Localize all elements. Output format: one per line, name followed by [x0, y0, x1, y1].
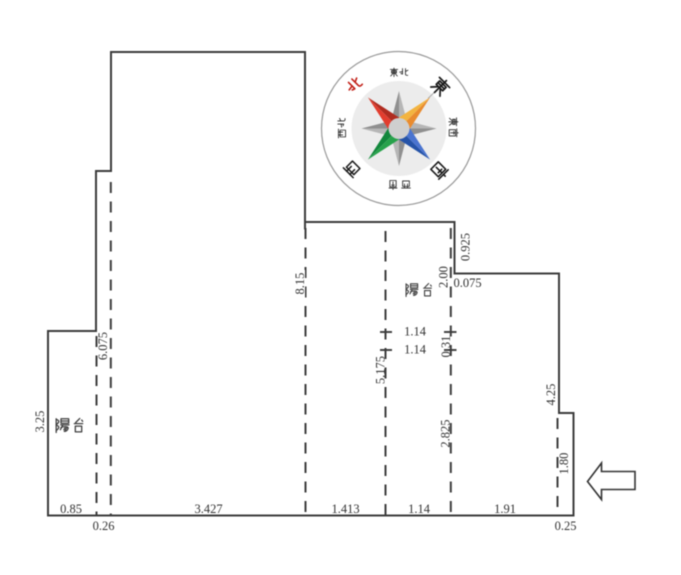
- svg-text:1.14: 1.14: [404, 343, 427, 357]
- svg-text:8.15: 8.15: [293, 273, 307, 295]
- svg-text:0.25: 0.25: [555, 519, 577, 533]
- svg-text:0.075: 0.075: [453, 276, 481, 290]
- svg-text:0.31: 0.31: [439, 336, 453, 358]
- svg-text:0.925: 0.925: [459, 233, 473, 261]
- svg-text:3.427: 3.427: [194, 502, 222, 516]
- svg-text:1.14: 1.14: [408, 502, 431, 516]
- svg-text:1.80: 1.80: [557, 453, 571, 475]
- svg-text:1.14: 1.14: [404, 325, 427, 339]
- svg-text:3.25: 3.25: [33, 411, 47, 433]
- svg-text:2.00: 2.00: [437, 266, 451, 288]
- svg-text:1.413: 1.413: [331, 502, 359, 516]
- svg-text:4.25: 4.25: [544, 384, 558, 406]
- svg-text:2.825: 2.825: [439, 419, 453, 447]
- svg-text:0.26: 0.26: [93, 519, 115, 533]
- svg-text:5.175: 5.175: [373, 356, 387, 384]
- svg-text:6.075: 6.075: [96, 332, 110, 360]
- svg-text:0.85: 0.85: [60, 502, 82, 516]
- svg-text:1.91: 1.91: [494, 502, 516, 516]
